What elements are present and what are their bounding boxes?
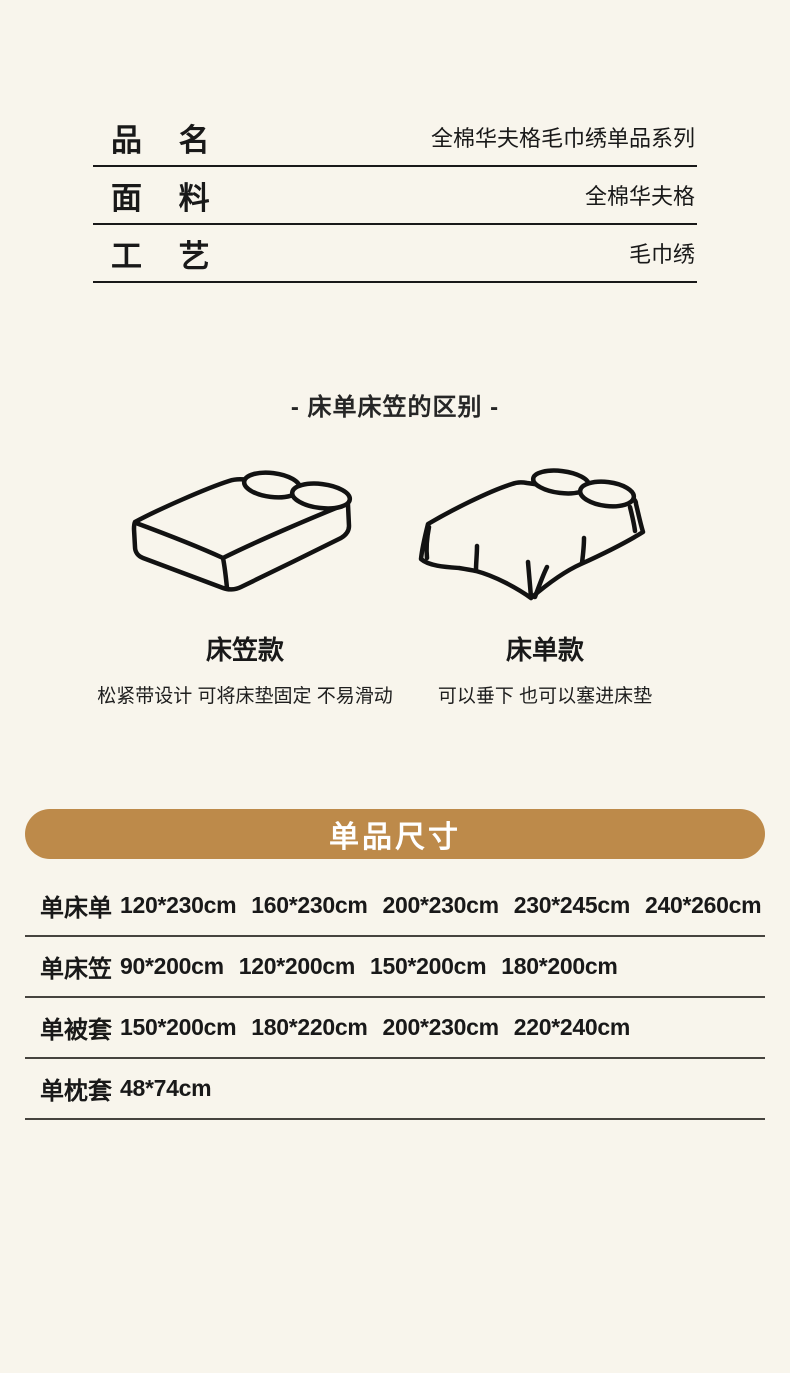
fitted-sheet-bed-illustration xyxy=(115,458,375,618)
size-row-flat-sheet: 单床单 120*230cm 160*230cm 200*230cm 230*24… xyxy=(25,876,765,937)
size-row-values: 90*200cm 120*200cm 150*200cm 180*200cm xyxy=(120,953,618,980)
product-spec-table: 品 名 全棉华夫格毛巾绣单品系列 面 料 全棉华夫格 工 艺 毛巾绣 xyxy=(93,109,697,283)
flat-sheet-desc: 可以垂下 也可以塞进床垫 xyxy=(395,681,695,708)
spec-value-name: 全棉华夫格毛巾绣单品系列 xyxy=(431,121,697,153)
size-section-title-pill: 单品尺寸 xyxy=(25,809,765,859)
fitted-sheet-column: 床笠款 松紧带设计 可将床垫固定 不易滑动 xyxy=(95,458,395,708)
fitted-sheet-name: 床笠款 xyxy=(95,630,395,667)
size-row-values: 48*74cm xyxy=(120,1075,211,1102)
size-value: 200*230cm xyxy=(383,892,499,919)
size-row-fitted-sheet: 单床笠 90*200cm 120*200cm 150*200cm 180*200… xyxy=(25,937,765,998)
size-value: 120*230cm xyxy=(120,892,236,919)
spec-value-fabric: 全棉华夫格 xyxy=(585,179,697,211)
size-row-values: 120*230cm 160*230cm 200*230cm 230*245cm … xyxy=(120,892,761,919)
size-value: 150*200cm xyxy=(370,953,486,980)
spec-label-craft: 工 艺 xyxy=(93,231,211,276)
spec-row-name: 品 名 全棉华夫格毛巾绣单品系列 xyxy=(93,109,697,167)
size-value: 240*260cm xyxy=(645,892,761,919)
flat-sheet-name: 床单款 xyxy=(395,630,695,667)
size-row-label: 单被套 xyxy=(25,1010,120,1045)
size-value: 180*220cm xyxy=(251,1014,367,1041)
product-detail-page: { "page": { "background": "#f8f5ec", "te… xyxy=(0,109,790,1373)
spec-row-craft: 工 艺 毛巾绣 xyxy=(93,225,697,283)
size-value: 90*200cm xyxy=(120,953,224,980)
spec-label-name: 品 名 xyxy=(93,115,211,160)
flat-sheet-bed-illustration xyxy=(415,458,675,618)
spec-row-fabric: 面 料 全棉华夫格 xyxy=(93,167,697,225)
size-section-title: 单品尺寸 xyxy=(329,812,461,856)
size-value: 180*200cm xyxy=(501,953,617,980)
flat-sheet-column: 床单款 可以垂下 也可以塞进床垫 xyxy=(395,458,695,708)
spec-label-fabric: 面 料 xyxy=(93,173,211,218)
size-value: 48*74cm xyxy=(120,1075,211,1102)
size-row-label: 单床单 xyxy=(25,888,120,923)
size-value: 200*230cm xyxy=(383,1014,499,1041)
size-value: 120*200cm xyxy=(239,953,355,980)
size-section: 单品尺寸 单床单 120*230cm 160*230cm 200*230cm 2… xyxy=(25,809,765,1120)
size-row-values: 150*200cm 180*220cm 200*230cm 220*240cm xyxy=(120,1014,630,1041)
size-row-duvet-cover: 单被套 150*200cm 180*220cm 200*230cm 220*24… xyxy=(25,998,765,1059)
size-table: 单床单 120*230cm 160*230cm 200*230cm 230*24… xyxy=(25,876,765,1120)
size-row-label: 单枕套 xyxy=(25,1071,120,1106)
size-row-label: 单床笠 xyxy=(25,949,120,984)
size-row-pillowcase: 单枕套 48*74cm xyxy=(25,1059,765,1120)
size-value: 150*200cm xyxy=(120,1014,236,1041)
spec-value-craft: 毛巾绣 xyxy=(629,237,697,269)
size-value: 220*240cm xyxy=(514,1014,630,1041)
size-value: 160*230cm xyxy=(251,892,367,919)
size-value: 230*245cm xyxy=(514,892,630,919)
diff-section-title: - 床单床笠的区别 - xyxy=(0,387,790,422)
bed-illustrations-row: 床笠款 松紧带设计 可将床垫固定 不易滑动 床单款 可以垂下 也可以塞进床垫 xyxy=(0,458,790,708)
fitted-sheet-desc: 松紧带设计 可将床垫固定 不易滑动 xyxy=(95,681,395,708)
